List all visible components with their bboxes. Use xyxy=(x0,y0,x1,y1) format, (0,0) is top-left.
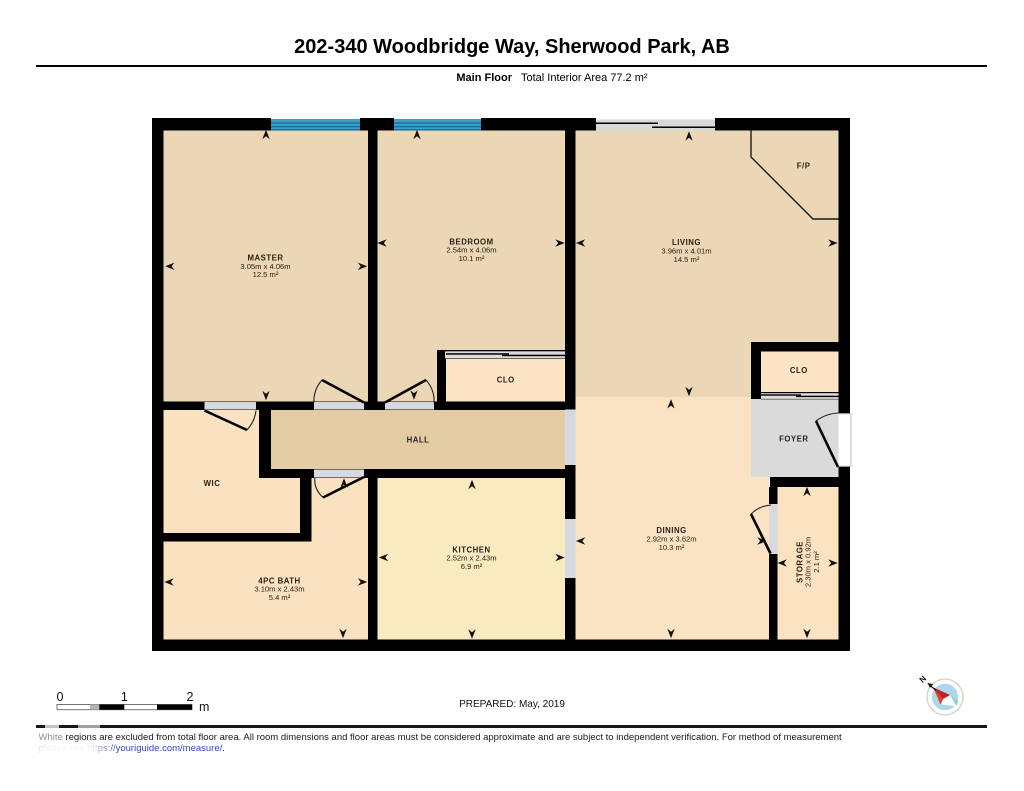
svg-text:HALL: HALL xyxy=(407,435,430,444)
svg-text:CLO: CLO xyxy=(790,366,808,375)
svg-text:m: m xyxy=(199,700,209,714)
svg-text:CLO: CLO xyxy=(497,376,515,385)
svg-text:14.5 m²: 14.5 m² xyxy=(674,255,700,264)
svg-text:WIC: WIC xyxy=(204,479,221,488)
svg-text:N: N xyxy=(918,674,929,685)
svg-text:2: 2 xyxy=(187,690,194,704)
svg-text:10.1 m²: 10.1 m² xyxy=(459,254,485,263)
svg-text:6.9 m²: 6.9 m² xyxy=(461,562,483,571)
svg-text:0: 0 xyxy=(57,690,64,704)
svg-text:F/P: F/P xyxy=(797,161,811,170)
svg-text:10.3 m²: 10.3 m² xyxy=(659,543,685,552)
svg-text:5.4 m²: 5.4 m² xyxy=(269,593,291,602)
svg-text:1: 1 xyxy=(121,690,128,704)
svg-text:FOYER: FOYER xyxy=(779,434,808,443)
svg-text:12.5 m²: 12.5 m² xyxy=(253,270,279,279)
svg-text:2.1 m²: 2.1 m² xyxy=(812,551,821,573)
